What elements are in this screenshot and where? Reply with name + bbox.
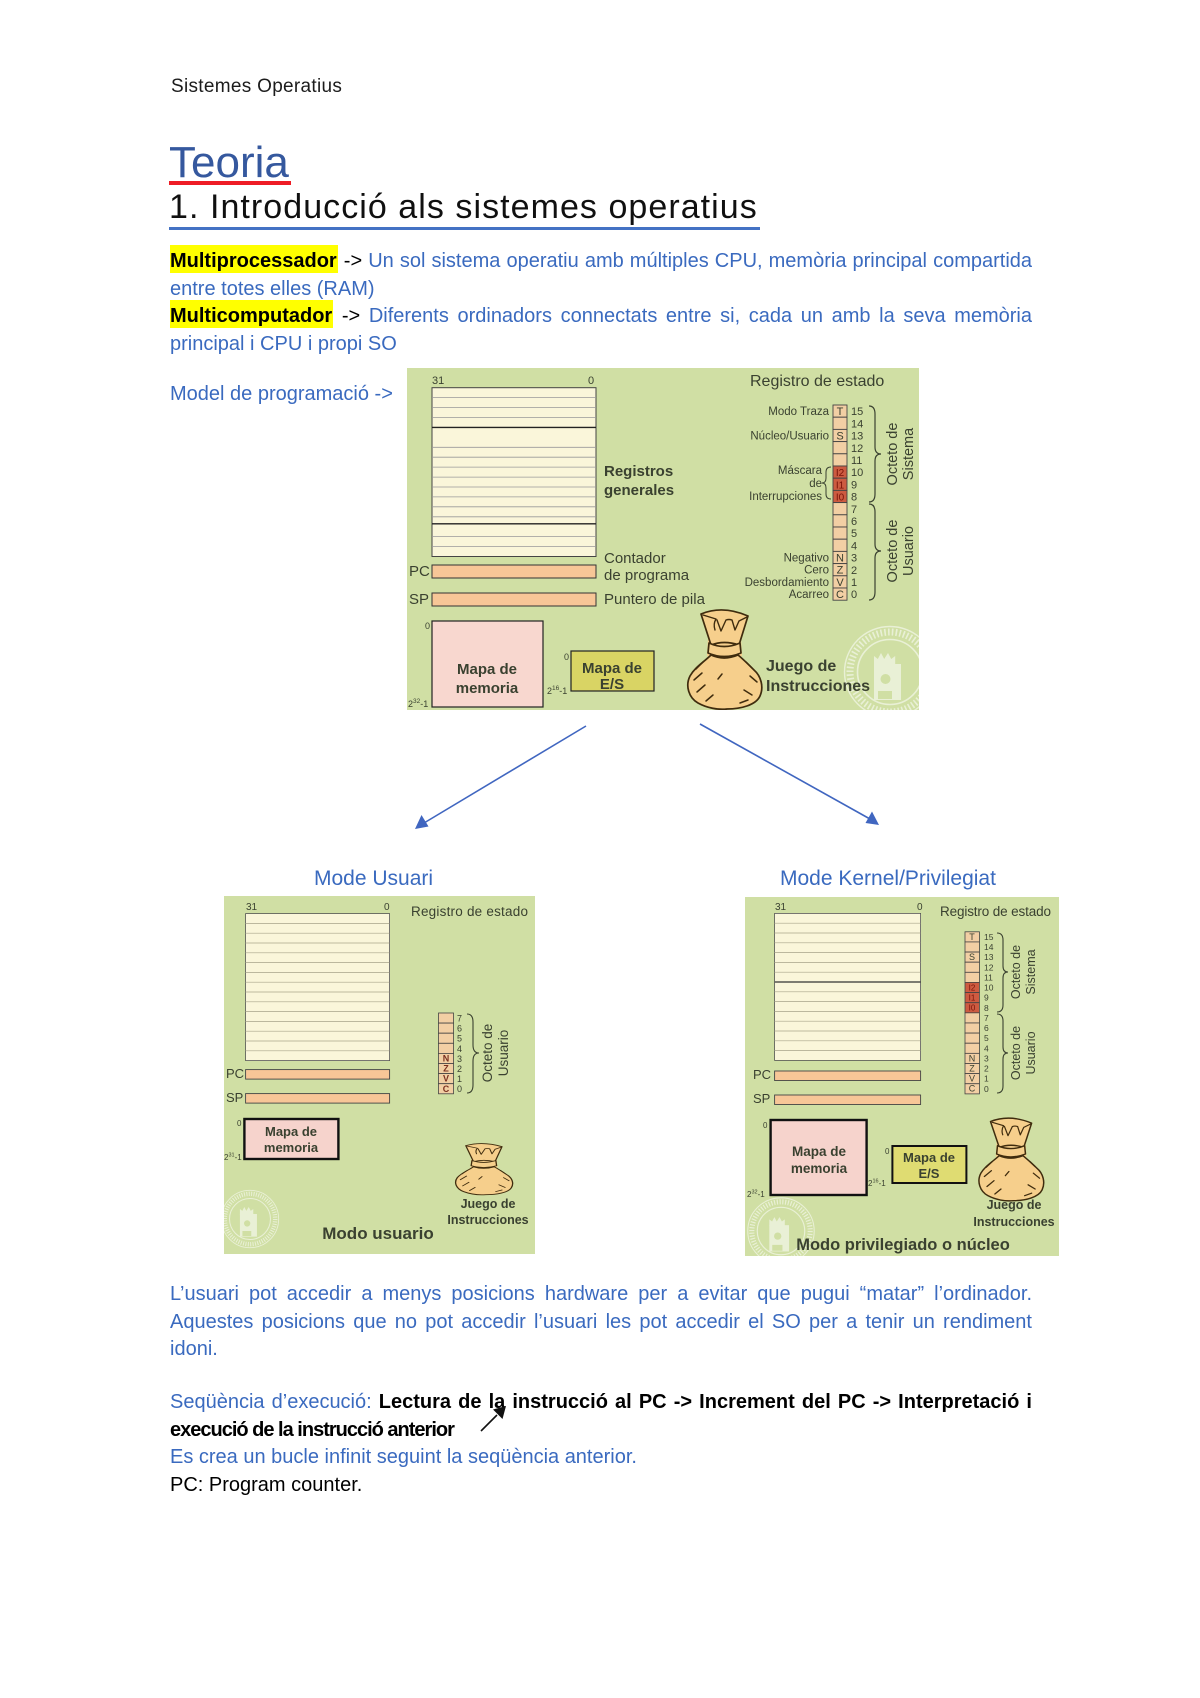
- svg-text:T: T: [969, 932, 975, 942]
- svg-text:0: 0: [885, 1147, 890, 1156]
- svg-text:14: 14: [984, 942, 994, 952]
- svg-text:N: N: [969, 1053, 976, 1063]
- svg-text:0: 0: [564, 652, 569, 662]
- svg-text:Usuario: Usuario: [1024, 1031, 1038, 1074]
- svg-text:Octeto de: Octeto de: [480, 1024, 495, 1083]
- svg-text:Sistema: Sistema: [1024, 949, 1038, 994]
- svg-text:2: 2: [457, 1064, 462, 1074]
- svg-text:10: 10: [851, 467, 863, 479]
- svg-text:0: 0: [425, 621, 430, 631]
- svg-text:I1: I1: [969, 994, 976, 1003]
- svg-text:S: S: [969, 952, 975, 962]
- svg-text:V: V: [443, 1074, 449, 1084]
- svg-text:Mapa de: Mapa de: [582, 660, 642, 677]
- svg-text:Juego de: Juego de: [766, 658, 836, 675]
- svg-text:10: 10: [984, 983, 994, 993]
- svg-text:PC: PC: [409, 563, 430, 580]
- svg-text:4: 4: [457, 1044, 462, 1054]
- svg-text:Sistema: Sistema: [901, 427, 917, 480]
- svg-text:4: 4: [984, 1043, 989, 1053]
- svg-text:6: 6: [984, 1023, 989, 1033]
- svg-text:0: 0: [384, 902, 390, 913]
- svg-text:3: 3: [457, 1054, 462, 1064]
- svg-text:1: 1: [457, 1074, 462, 1084]
- svg-text:12: 12: [851, 443, 863, 455]
- svg-text:SP: SP: [409, 591, 429, 608]
- svg-text:de: de: [809, 478, 822, 490]
- svg-text:Modo usuario: Modo usuario: [322, 1224, 433, 1243]
- svg-text:Usuario: Usuario: [901, 526, 917, 576]
- svg-text:1: 1: [851, 577, 857, 589]
- svg-text:I1: I1: [836, 480, 845, 491]
- svg-text:Modo Traza: Modo Traza: [768, 406, 829, 418]
- svg-text:Mapa de: Mapa de: [792, 1144, 847, 1159]
- svg-text:E/S: E/S: [600, 676, 624, 693]
- svg-text:Desbordamiento: Desbordamiento: [745, 577, 829, 589]
- svg-text:Mapa de: Mapa de: [265, 1124, 317, 1139]
- svg-text:N: N: [443, 1054, 450, 1064]
- svg-text:0: 0: [851, 589, 857, 601]
- svg-text:9: 9: [984, 993, 989, 1003]
- svg-text:Instrucciones: Instrucciones: [447, 1213, 528, 1227]
- svg-text:7: 7: [457, 1014, 462, 1024]
- svg-text:Juego de: Juego de: [461, 1197, 516, 1211]
- svg-text:0: 0: [917, 902, 923, 913]
- svg-text:0: 0: [763, 1121, 768, 1130]
- svg-text:C: C: [443, 1084, 450, 1094]
- svg-text:Z: Z: [969, 1064, 975, 1074]
- svg-text:2: 2: [984, 1064, 989, 1074]
- svg-text:15: 15: [851, 406, 863, 418]
- svg-text:Instrucciones: Instrucciones: [766, 678, 870, 695]
- svg-text:Mapa de: Mapa de: [457, 661, 517, 678]
- svg-text:Z: Z: [443, 1064, 449, 1074]
- svg-text:generales: generales: [604, 482, 674, 499]
- svg-text:6: 6: [851, 516, 857, 528]
- svg-text:memoria: memoria: [264, 1140, 319, 1155]
- svg-text:Octeto de: Octeto de: [1009, 1026, 1023, 1080]
- svg-text:11: 11: [984, 972, 993, 982]
- svg-text:Acarreo: Acarreo: [789, 589, 829, 601]
- svg-text:Registro de estado: Registro de estado: [750, 373, 884, 390]
- svg-text:I2: I2: [836, 468, 845, 479]
- svg-text:4: 4: [851, 540, 857, 552]
- svg-text:memoria: memoria: [791, 1161, 848, 1176]
- svg-text:I0: I0: [969, 1004, 976, 1013]
- svg-text:31: 31: [775, 902, 787, 913]
- svg-text:Interrupciones: Interrupciones: [749, 491, 822, 503]
- svg-text:0: 0: [984, 1084, 989, 1094]
- svg-text:Puntero de pila: Puntero de pila: [604, 591, 706, 608]
- svg-text:0: 0: [237, 1119, 242, 1128]
- svg-text:3: 3: [851, 553, 857, 565]
- svg-text:5: 5: [984, 1033, 989, 1043]
- svg-text:Modo privilegiado o núcleo: Modo privilegiado o núcleo: [796, 1236, 1010, 1254]
- svg-text:13: 13: [851, 431, 863, 443]
- svg-text:9: 9: [851, 479, 857, 491]
- svg-text:E/S: E/S: [919, 1166, 940, 1181]
- svg-text:7: 7: [851, 504, 857, 516]
- svg-text:12: 12: [984, 962, 994, 972]
- svg-text:Máscara: Máscara: [778, 465, 823, 477]
- svg-text:PC: PC: [226, 1066, 244, 1081]
- svg-text:31: 31: [246, 902, 258, 913]
- svg-text:I0: I0: [836, 493, 845, 504]
- svg-text:Registro de estado: Registro de estado: [940, 904, 1051, 919]
- svg-text:memoria: memoria: [456, 680, 519, 697]
- svg-text:de programa: de programa: [604, 567, 690, 584]
- svg-text:Juego de: Juego de: [987, 1198, 1042, 1212]
- svg-text:6: 6: [457, 1024, 462, 1034]
- svg-text:I2: I2: [969, 984, 976, 993]
- svg-text:8: 8: [851, 492, 857, 504]
- svg-text:N: N: [836, 553, 844, 565]
- svg-text:Registros: Registros: [604, 463, 673, 480]
- svg-text:T: T: [837, 406, 844, 418]
- svg-text:7: 7: [984, 1013, 989, 1023]
- svg-text:5: 5: [851, 528, 857, 540]
- svg-text:Negativo: Negativo: [784, 553, 829, 565]
- svg-text:PC: PC: [753, 1067, 771, 1082]
- svg-text:11: 11: [851, 455, 862, 467]
- svg-text:0: 0: [588, 375, 594, 387]
- svg-text:Octeto de: Octeto de: [885, 520, 901, 583]
- svg-text:Mapa de: Mapa de: [903, 1150, 955, 1165]
- svg-text:Z: Z: [837, 565, 844, 577]
- svg-text:Usuario: Usuario: [496, 1030, 511, 1077]
- svg-text:3: 3: [984, 1054, 989, 1064]
- svg-text:Instrucciones: Instrucciones: [973, 1215, 1054, 1229]
- svg-text:SP: SP: [753, 1091, 770, 1106]
- svg-text:C: C: [836, 589, 844, 601]
- svg-text:8: 8: [984, 1003, 989, 1013]
- svg-text:14: 14: [851, 418, 863, 430]
- svg-text:Registro de estado: Registro de estado: [411, 904, 528, 919]
- svg-text:Cero: Cero: [804, 565, 829, 577]
- svg-text:2: 2: [851, 565, 857, 577]
- svg-text:13: 13: [984, 952, 994, 962]
- svg-text:C: C: [969, 1084, 976, 1094]
- svg-text:S: S: [836, 430, 843, 442]
- svg-text:Contador: Contador: [604, 550, 666, 567]
- svg-text:Octeto de: Octeto de: [885, 423, 901, 486]
- svg-text:31: 31: [432, 375, 444, 387]
- svg-text:Octeto de: Octeto de: [1009, 945, 1023, 999]
- svg-text:15: 15: [984, 932, 994, 942]
- svg-text:V: V: [969, 1074, 975, 1084]
- svg-text:0: 0: [457, 1084, 462, 1094]
- svg-text:SP: SP: [226, 1090, 243, 1105]
- svg-text:Núcleo/Usuario: Núcleo/Usuario: [750, 431, 829, 443]
- svg-text:1: 1: [984, 1074, 989, 1084]
- svg-text:V: V: [836, 577, 844, 589]
- svg-text:5: 5: [457, 1034, 462, 1044]
